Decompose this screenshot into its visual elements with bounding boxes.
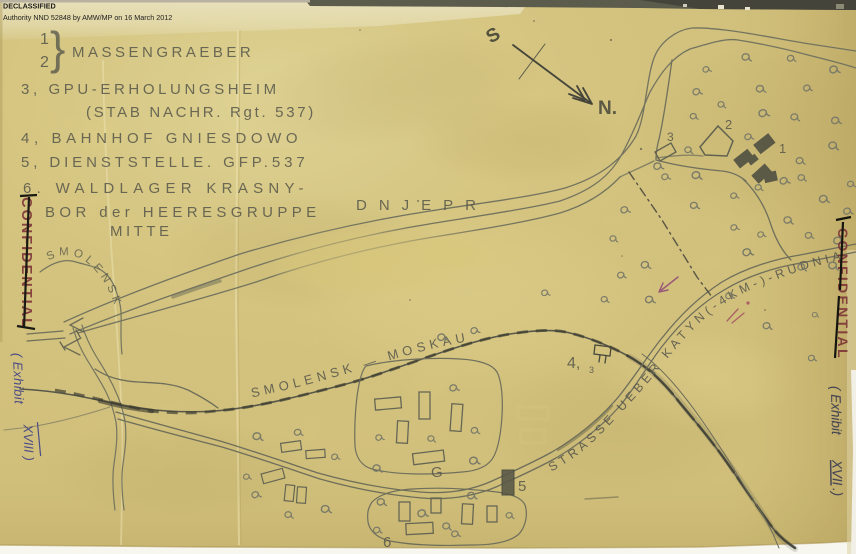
svg-text:DNJEPR: DNJEPR [356, 197, 488, 214]
svg-text:1: 1 [779, 141, 786, 156]
svg-text:4, BAHNHOF GNIESDOWO: 4, BAHNHOF GNIESDOWO [21, 130, 302, 147]
svg-text:(STAB NACHR. Rgt. 537): (STAB NACHR. Rgt. 537) [86, 104, 316, 121]
svg-text:( Exhibit: ( Exhibit [10, 353, 27, 406]
svg-text:2: 2 [725, 117, 732, 132]
svg-text:Authority NND 52848 by AMW/MP: Authority NND 52848 by AMW/MP on 16 Marc… [3, 13, 172, 22]
svg-text:5: 5 [518, 478, 526, 495]
svg-text:3: 3 [667, 130, 674, 144]
svg-text:DECLASSIFIED: DECLASSIFIED [3, 2, 56, 11]
svg-text:N.: N. [598, 98, 617, 119]
svg-text:( Exhibit: ( Exhibit [828, 386, 844, 436]
svg-text:MASSENGRAEBER: MASSENGRAEBER [72, 44, 254, 61]
svg-text:MITTE: MITTE [110, 223, 173, 240]
svg-text:4,: 4, [567, 355, 580, 372]
svg-text:6: 6 [383, 534, 391, 551]
svg-text:XVII: XVII [829, 459, 844, 486]
svg-text:BOR der HEERESGRUPPE: BOR der HEERESGRUPPE [45, 204, 321, 221]
svg-text:CONFIDENTIAL: CONFIDENTIAL [835, 228, 851, 360]
svg-text:3, GPU-ERHOLUNGSHEIM: 3, GPU-ERHOLUNGSHEIM [21, 81, 280, 98]
svg-text:5, DIENSTSTELLE. GFP.537: 5, DIENSTSTELLE. GFP.537 [21, 154, 309, 171]
svg-text:.): .) [830, 488, 845, 497]
svg-text:XVIII: XVIII [20, 423, 36, 453]
svg-text:3: 3 [589, 365, 594, 375]
svg-text:}: } [50, 22, 68, 74]
svg-text:6. WALDLAGER KRASNY-: 6. WALDLAGER KRASNY- [23, 180, 309, 197]
svg-text:G: G [431, 464, 443, 481]
